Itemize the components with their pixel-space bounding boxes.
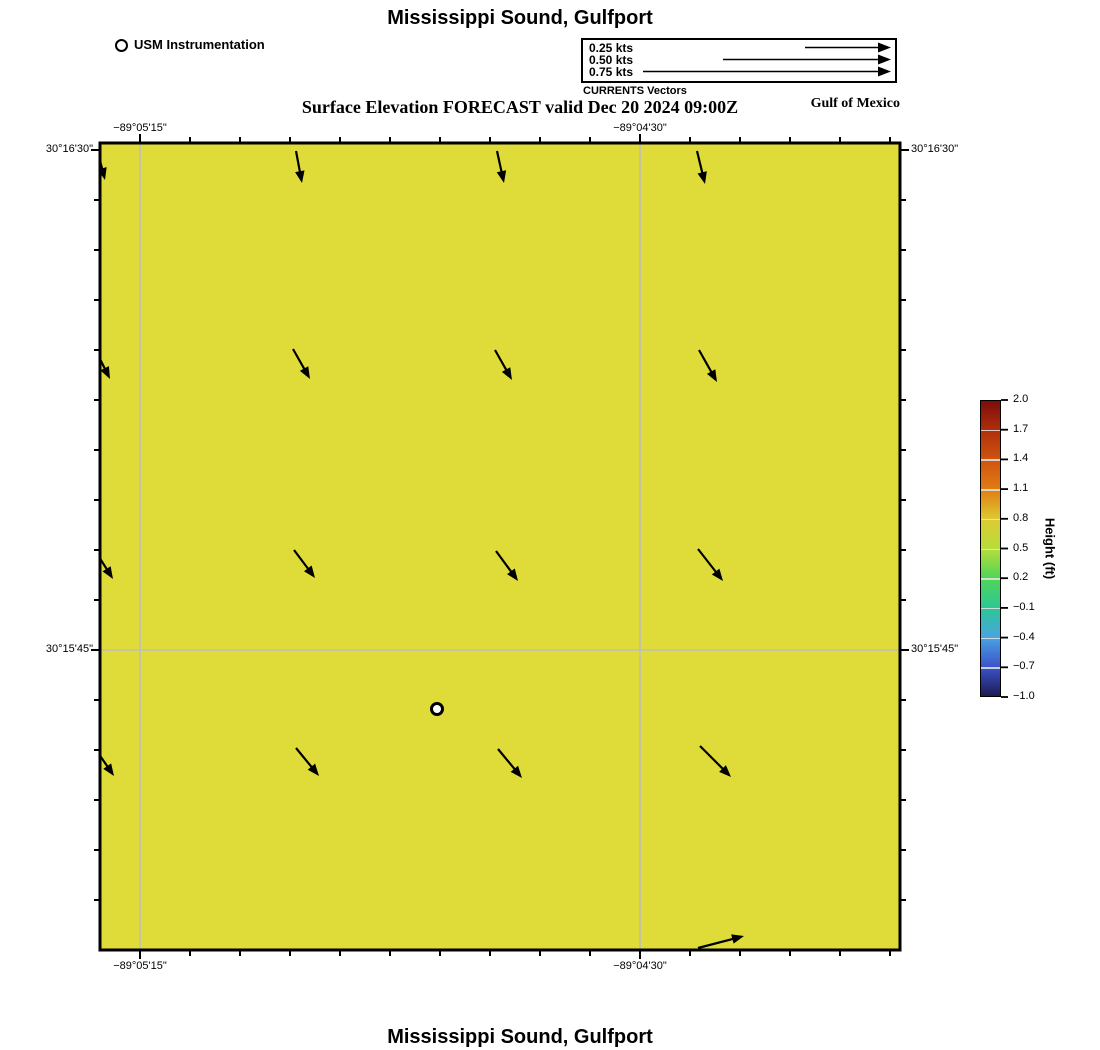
axis-tick-label-lat: 30°15'45" [0,643,93,655]
colorbar-tick-label: −0.4 [1013,631,1057,643]
axis-tick-label-lon: −89°04'30" [580,960,700,972]
figure-canvas: Mississippi Sound, Gulfport USM Instrume… [0,0,1100,1050]
axis-tick-label-lon: −89°05'15" [80,960,200,972]
scale-label-075: 0.75 kts [589,67,633,78]
colorbar-tick-label: −1.0 [1013,690,1057,702]
colorbar-tick-line [981,608,1000,610]
colorbar-tick-label: 1.7 [1013,423,1057,435]
colorbar-tick-line [981,430,1000,432]
colorbar-tick-label: 2.0 [1013,393,1057,405]
colorbar-tick-label: 0.2 [1013,571,1057,583]
colorbar-tick-label: −0.7 [1013,660,1057,672]
usm-legend-label: USM Instrumentation [134,37,265,52]
colorbar-tick-line [981,638,1000,640]
colorbar-tick-label: 1.1 [1013,482,1057,494]
colorbar-tick-label: 0.8 [1013,512,1057,524]
colorbar-tick-line [981,578,1000,580]
colorbar-tick-line [981,489,1000,491]
map-panel [100,143,900,950]
colorbar-tick-line [981,549,1000,551]
currents-scale-box: 0.25 kts 0.50 kts 0.75 kts [581,38,897,83]
colorbar-tick-line [981,667,1000,669]
footer-title: Mississippi Sound, Gulfport [0,1026,1040,1049]
colorbar-tick-label: 0.5 [1013,542,1057,554]
axis-tick-label-lon: −89°05'15" [80,122,200,134]
axis-tick-label-lon: −89°04'30" [580,122,700,134]
page-title: Mississippi Sound, Gulfport [0,7,1040,30]
colorbar-tick-line [981,459,1000,461]
forecast-subtitle: Surface Elevation FORECAST valid Dec 20 … [0,97,1040,118]
colorbar-tick-label: 1.4 [1013,452,1057,464]
colorbar-tick-label: −0.1 [1013,601,1057,613]
axis-tick-label-lat: 30°15'45" [911,643,1011,655]
axis-tick-label-lat: 30°16'30" [911,143,1011,155]
axis-tick-label-lat: 30°16'30" [0,143,93,155]
colorbar-tick-line [981,519,1000,521]
station-marker-icon [115,39,128,52]
currents-scale-caption: CURRENTS Vectors [583,85,687,97]
